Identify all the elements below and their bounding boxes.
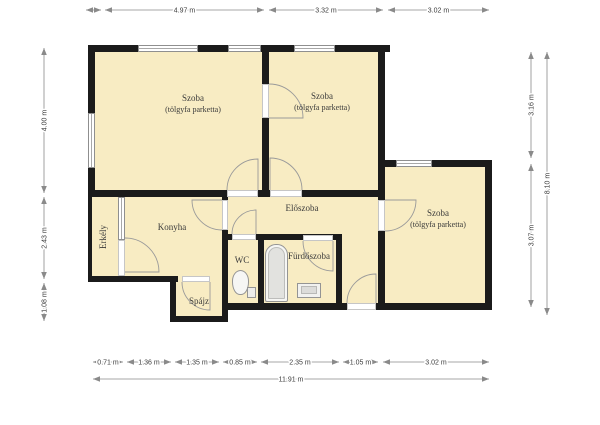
label-layer: Szoba(tölgyfa parketta)Szoba(tölgyfa par…: [0, 0, 600, 425]
room-label-szoba-2: Szoba(tölgyfa parketta): [294, 91, 350, 113]
room-label-erkely: Erkély: [98, 225, 110, 249]
floor-plan: 4.97 m3.32 m3.02 m4.00 m2.43 m1.08 m3.16…: [0, 0, 600, 425]
room-floor-type: (tölgyfa parketta): [165, 105, 221, 115]
room-name: Szoba: [410, 208, 466, 220]
room-label-eloszoba: Előszoba: [286, 203, 319, 215]
room-name: Előszoba: [286, 203, 319, 215]
room-label-spajz: Spájz: [189, 296, 209, 308]
room-floor-type: (tölgyfa parketta): [410, 220, 466, 230]
room-label-konyha: Konyha: [158, 222, 187, 234]
room-label-furdoszoba: Fürdőszoba: [288, 251, 330, 263]
room-name: Fürdőszoba: [288, 251, 330, 263]
room-name: Spájz: [189, 296, 209, 308]
room-name: Konyha: [158, 222, 187, 234]
room-name: Szoba: [294, 91, 350, 103]
room-name: WC: [235, 255, 250, 267]
room-name: Szoba: [165, 93, 221, 105]
room-label-szoba-3: Szoba(tölgyfa parketta): [410, 208, 466, 230]
room-label-szoba-1: Szoba(tölgyfa parketta): [165, 93, 221, 115]
room-label-wc: WC: [235, 255, 250, 267]
room-name: Erkély: [98, 225, 110, 249]
room-floor-type: (tölgyfa parketta): [294, 103, 350, 113]
